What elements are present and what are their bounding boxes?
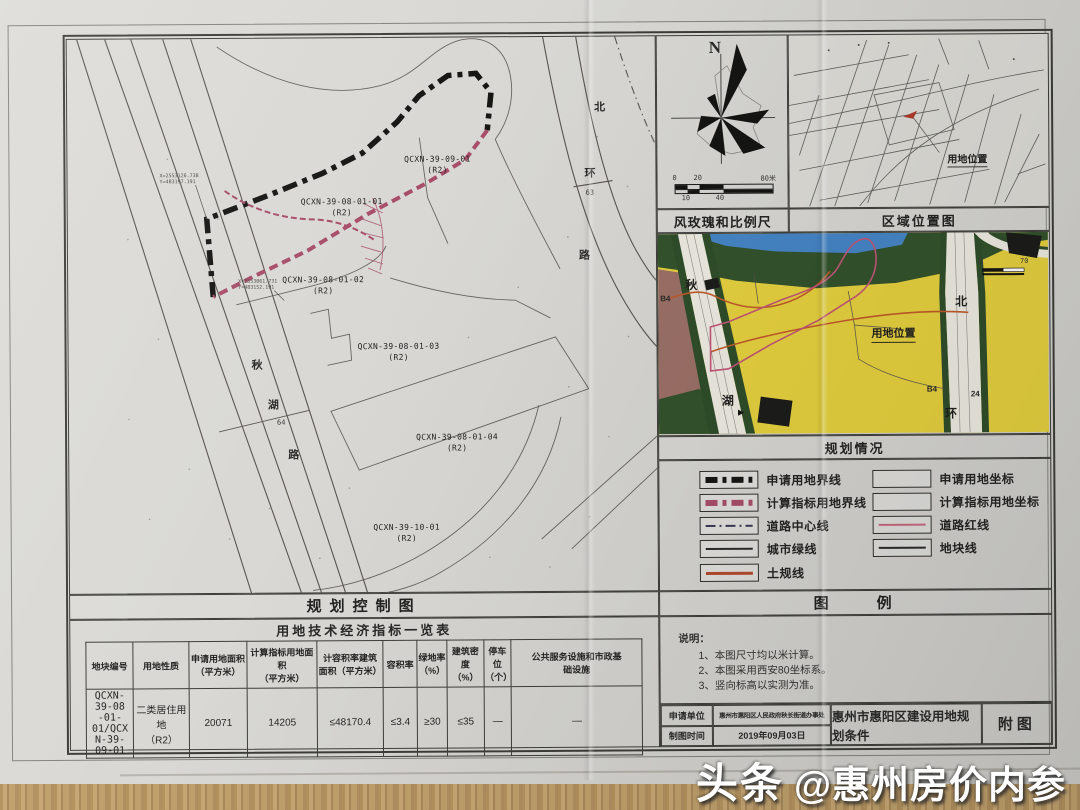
- legend-title-band: 图 例: [659, 589, 1052, 616]
- watermark-brand: 头条: [696, 750, 784, 810]
- north-label: N: [709, 38, 721, 58]
- control-map-drawing: [67, 36, 660, 596]
- west-road-name: 秋: [252, 357, 263, 373]
- econ-table-header-row: 地块编号 用地性质 申请用地面积 （平方米） 计算指标用地面积 （平方米） 计容…: [86, 639, 642, 689]
- parcel-label: QCXN-39-08-01-03(R2): [358, 341, 440, 363]
- notes-heading: 说明：: [678, 631, 710, 646]
- scale-bar: [675, 184, 774, 195]
- legend-panel: 申请用地界线 计算指标用地界线 道路中心线 城市绿线 土规线 申请用地坐标: [658, 458, 1052, 591]
- econ-cell-far: ≤3.4: [384, 687, 418, 756]
- legend-label: 申请用地坐标: [939, 470, 1014, 487]
- notes-panel: 说明： 1、本图尺寸均以米计算。 2、本图采用西安80坐标系。 3、竖向标高以实…: [659, 614, 1053, 704]
- west-road-width: 64: [277, 419, 285, 427]
- legend-label: 计算指标用地坐标: [939, 492, 1039, 510]
- plan-scale-tick: 70: [1020, 257, 1028, 265]
- coordinate-annotation: X=2553126.738 Y=483197.191: [159, 173, 198, 185]
- econ-col-header: 用地性质: [133, 642, 189, 689]
- scale-tick: 0: [672, 174, 676, 182]
- econ-cell-indicator-area: 14205: [247, 688, 317, 757]
- wind-rose-drawing: [657, 35, 787, 176]
- econ-cell-floor-area: ≤48170.4: [317, 687, 384, 756]
- watermark-account: @惠州房价内参: [794, 754, 1066, 809]
- title-block: 申请单位 惠州市惠阳区人民政府秋长街道办事处 惠州市惠阳区建设用地规划条件 附图…: [660, 702, 1053, 747]
- plan-west-road-name: 湖: [722, 392, 734, 409]
- road-centerline-symbol-icon: [700, 517, 759, 535]
- legend-title: 图 例: [814, 592, 898, 614]
- block-code-label: 24: [971, 389, 980, 398]
- legend-label: 道路中心线: [767, 517, 830, 534]
- west-road-name: 湖: [268, 397, 279, 413]
- econ-col-header: 停车位 （个）: [483, 640, 511, 687]
- econ-cell-density: ≤35: [447, 687, 484, 756]
- indicator-boundary-symbol-icon: [699, 494, 758, 512]
- legend-label: 申请用地界线: [766, 471, 841, 488]
- parcel-label: QCXN-39-08-01-01(R2): [301, 196, 383, 218]
- applied-boundary-symbol-icon: [699, 471, 758, 489]
- plan-situation-drawing: [658, 232, 1049, 434]
- east-road-name: 路: [579, 247, 590, 263]
- doc-title-cell: 惠州市惠阳区建设用地规划条件: [831, 703, 982, 745]
- parcel-label: QCXN-39-09-01(R2): [404, 153, 471, 175]
- econ-cell-green-rate: ≥30: [417, 687, 448, 756]
- note-item: 1、本图尺寸均以米计算。: [698, 647, 819, 663]
- city-greenline-symbol-icon: [700, 540, 759, 558]
- east-road-name: 北: [594, 99, 605, 115]
- econ-table-panel: 用地技术经济指标一览表 地块编号 用地性质 申请用地面积 （平方米） 计算指标用…: [69, 616, 660, 751]
- tugui-line-symbol-icon: [700, 564, 759, 582]
- indicator-coordinate-symbol-icon: [872, 493, 931, 511]
- control-map-title-band: 规划控制图: [69, 591, 659, 620]
- plan-situation-title-band: 规划情况: [658, 434, 1051, 460]
- parcel-label: QCXN-39-08-01-04(R2): [416, 431, 498, 453]
- legend-label: 计算指标用地界线: [766, 494, 866, 512]
- econ-col-header: 计算指标用地面积 （平方米）: [247, 641, 317, 688]
- attachment-cell: 附图: [982, 703, 1052, 744]
- note-item: 2、本图采用西安80坐标系。: [698, 662, 831, 678]
- econ-cell-parcel-id: QCXN-39-08 -01-01/QCX N-39-09-01: [86, 689, 134, 758]
- applicant-label: 申请单位: [661, 705, 713, 726]
- econ-col-header: 建筑密度 （%）: [447, 640, 483, 687]
- legend-label: 地块线: [940, 539, 978, 556]
- econ-table: 地块编号 用地性质 申请用地面积 （平方米） 计算指标用地面积 （平方米） 计容…: [85, 638, 643, 758]
- applicant-value: 惠州市惠阳区人民政府秋长街道办事处: [713, 704, 831, 725]
- plan-situation-panel: 秋 湖 ▶ 北 环 用地位置 B4 B4 24 0 70: [657, 231, 1051, 436]
- legend-label: 道路红线: [940, 516, 990, 533]
- region-map-title: 区域位置图: [882, 210, 957, 229]
- wind-rose-title: 风玫瑰和比例尺: [674, 211, 772, 231]
- econ-col-header: 绿地率 （%）: [417, 640, 448, 687]
- econ-col-header: 地块编号: [86, 642, 134, 689]
- control-map-title: 规划控制图: [307, 595, 422, 617]
- scale-tick: 80米: [760, 174, 775, 184]
- watermark: 头条 @惠州房价内参: [696, 750, 1066, 810]
- scale-tick: 10: [682, 194, 690, 202]
- west-road-name: 路: [288, 446, 299, 462]
- plan-east-road-name: 环: [945, 404, 957, 421]
- econ-col-header: 公共服务设施和市政基 础设施: [511, 639, 642, 687]
- plan-west-road-name: 秋: [685, 276, 697, 293]
- econ-col-header: 计容积率建筑 面积（平方米）: [317, 640, 384, 687]
- plan-situation-title: 规划情况: [825, 437, 885, 456]
- econ-col-header: 申请用地面积 （平方米）: [189, 641, 248, 688]
- scale-tick: 20: [693, 174, 701, 182]
- east-road-name: 环: [584, 165, 595, 181]
- wind-rose-title-band: 风玫瑰和比例尺: [657, 208, 789, 233]
- region-map-title-band: 区域位置图: [789, 207, 1050, 233]
- region-site-label: 用地位置: [947, 150, 987, 167]
- legend-label: 土规线: [767, 564, 805, 581]
- block-code-label: B4: [927, 385, 937, 394]
- road-redline-symbol-icon: [873, 516, 932, 534]
- photographed-planning-sheet: QCXN-39-09-01(R2) QCXN-39-08-01-01(R2) Q…: [0, 0, 1080, 810]
- econ-cell-land-use: 二类居住用地 （R2）: [133, 689, 189, 758]
- wind-rose-panel: N 0 20 80米 10 40: [656, 34, 789, 209]
- region-map-panel: 用地位置: [788, 33, 1050, 209]
- econ-cell-applied-area: 20071: [189, 688, 248, 757]
- plan-scale-tick: 0: [979, 258, 983, 266]
- east-road-width: 63: [586, 189, 594, 197]
- econ-col-header: 容积率: [383, 640, 417, 687]
- legend-label: 城市绿线: [767, 540, 817, 557]
- plan-site-label: 用地位置: [871, 325, 915, 343]
- region-map-drawing: [789, 34, 1048, 207]
- econ-table-data-row: QCXN-39-08 -01-01/QCX N-39-09-01 二类居住用地 …: [86, 686, 642, 758]
- date-label: 制图时间: [661, 725, 713, 746]
- plan-east-road-name: 北: [955, 292, 967, 309]
- planning-control-map-panel: QCXN-39-09-01(R2) QCXN-39-08-01-01(R2) Q…: [66, 35, 659, 595]
- road-arrow-icon: ▶: [738, 408, 744, 417]
- econ-cell-public-service: —: [511, 686, 642, 756]
- block-line-symbol-icon: [873, 539, 932, 557]
- date-value: 2019年09月03日: [713, 725, 831, 746]
- scale-tick: 40: [716, 194, 724, 202]
- econ-cell-parking: —: [484, 687, 512, 756]
- planning-sheet: QCXN-39-09-01(R2) QCXN-39-08-01-01(R2) Q…: [0, 0, 1080, 810]
- coordinate-annotation: X=2553061.731 Y=483152.191: [238, 279, 277, 291]
- block-code-label: B4: [660, 294, 670, 303]
- site-marker: [903, 111, 917, 119]
- applied-coordinate-symbol-icon: [872, 470, 931, 488]
- note-item: 3、竖向标高以实测为准。: [699, 677, 820, 693]
- parcel-label: QCXN-39-10-01(R2): [373, 522, 440, 544]
- parcel-label: QCXN-39-08-01-02(R2): [282, 274, 364, 296]
